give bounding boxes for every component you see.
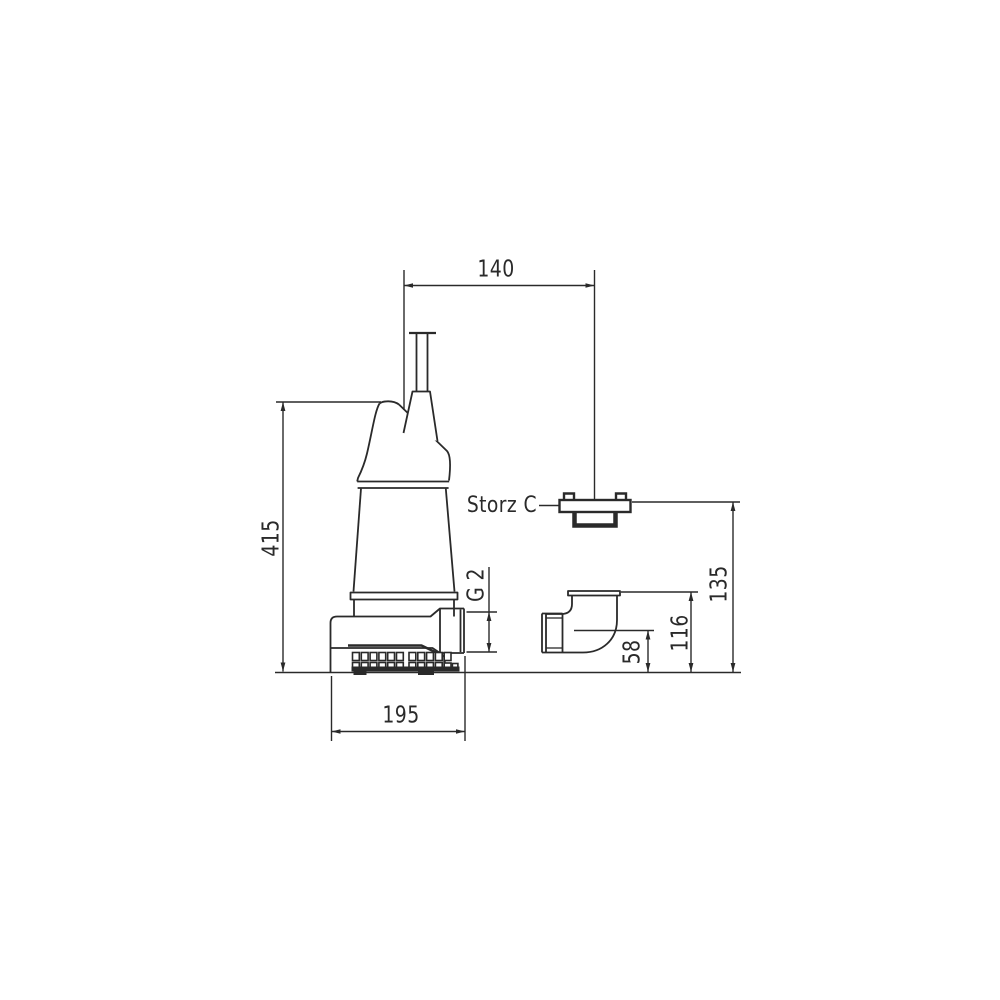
pump-dimensional-drawing: 140 415 Storz C G 2 58 116 135 195	[0, 0, 1000, 1000]
clamp-band-top	[357, 482, 449, 489]
strainer-base	[352, 667, 460, 676]
outlet-thread-label: G 2	[466, 568, 489, 602]
dim-label-overall-height: 415	[261, 519, 284, 556]
clamp-band-bottom	[351, 593, 458, 617]
conical-housing	[354, 489, 455, 592]
elbow-inlet-port	[542, 614, 563, 653]
elbow-outer-wall	[563, 596, 618, 653]
pump-body	[331, 333, 465, 672]
dim-label-outlet-centerline-height: 58	[622, 640, 645, 665]
motor-dome	[357, 401, 450, 481]
elbow-inner-wall	[546, 596, 572, 615]
cable-gland	[404, 392, 438, 442]
elbow-flange	[568, 591, 620, 596]
dim-label-base-width: 195	[382, 705, 419, 728]
elbow-fitting	[542, 591, 620, 653]
dim-label-elbow-flange-height: 116	[670, 614, 693, 651]
storz-sleeve	[575, 512, 616, 526]
storz-coupling-label: Storz C	[467, 495, 537, 517]
dim-label-coupling-height: 135	[709, 565, 732, 602]
dim-label-top-width: 140	[477, 259, 514, 282]
power-cable	[409, 333, 436, 392]
